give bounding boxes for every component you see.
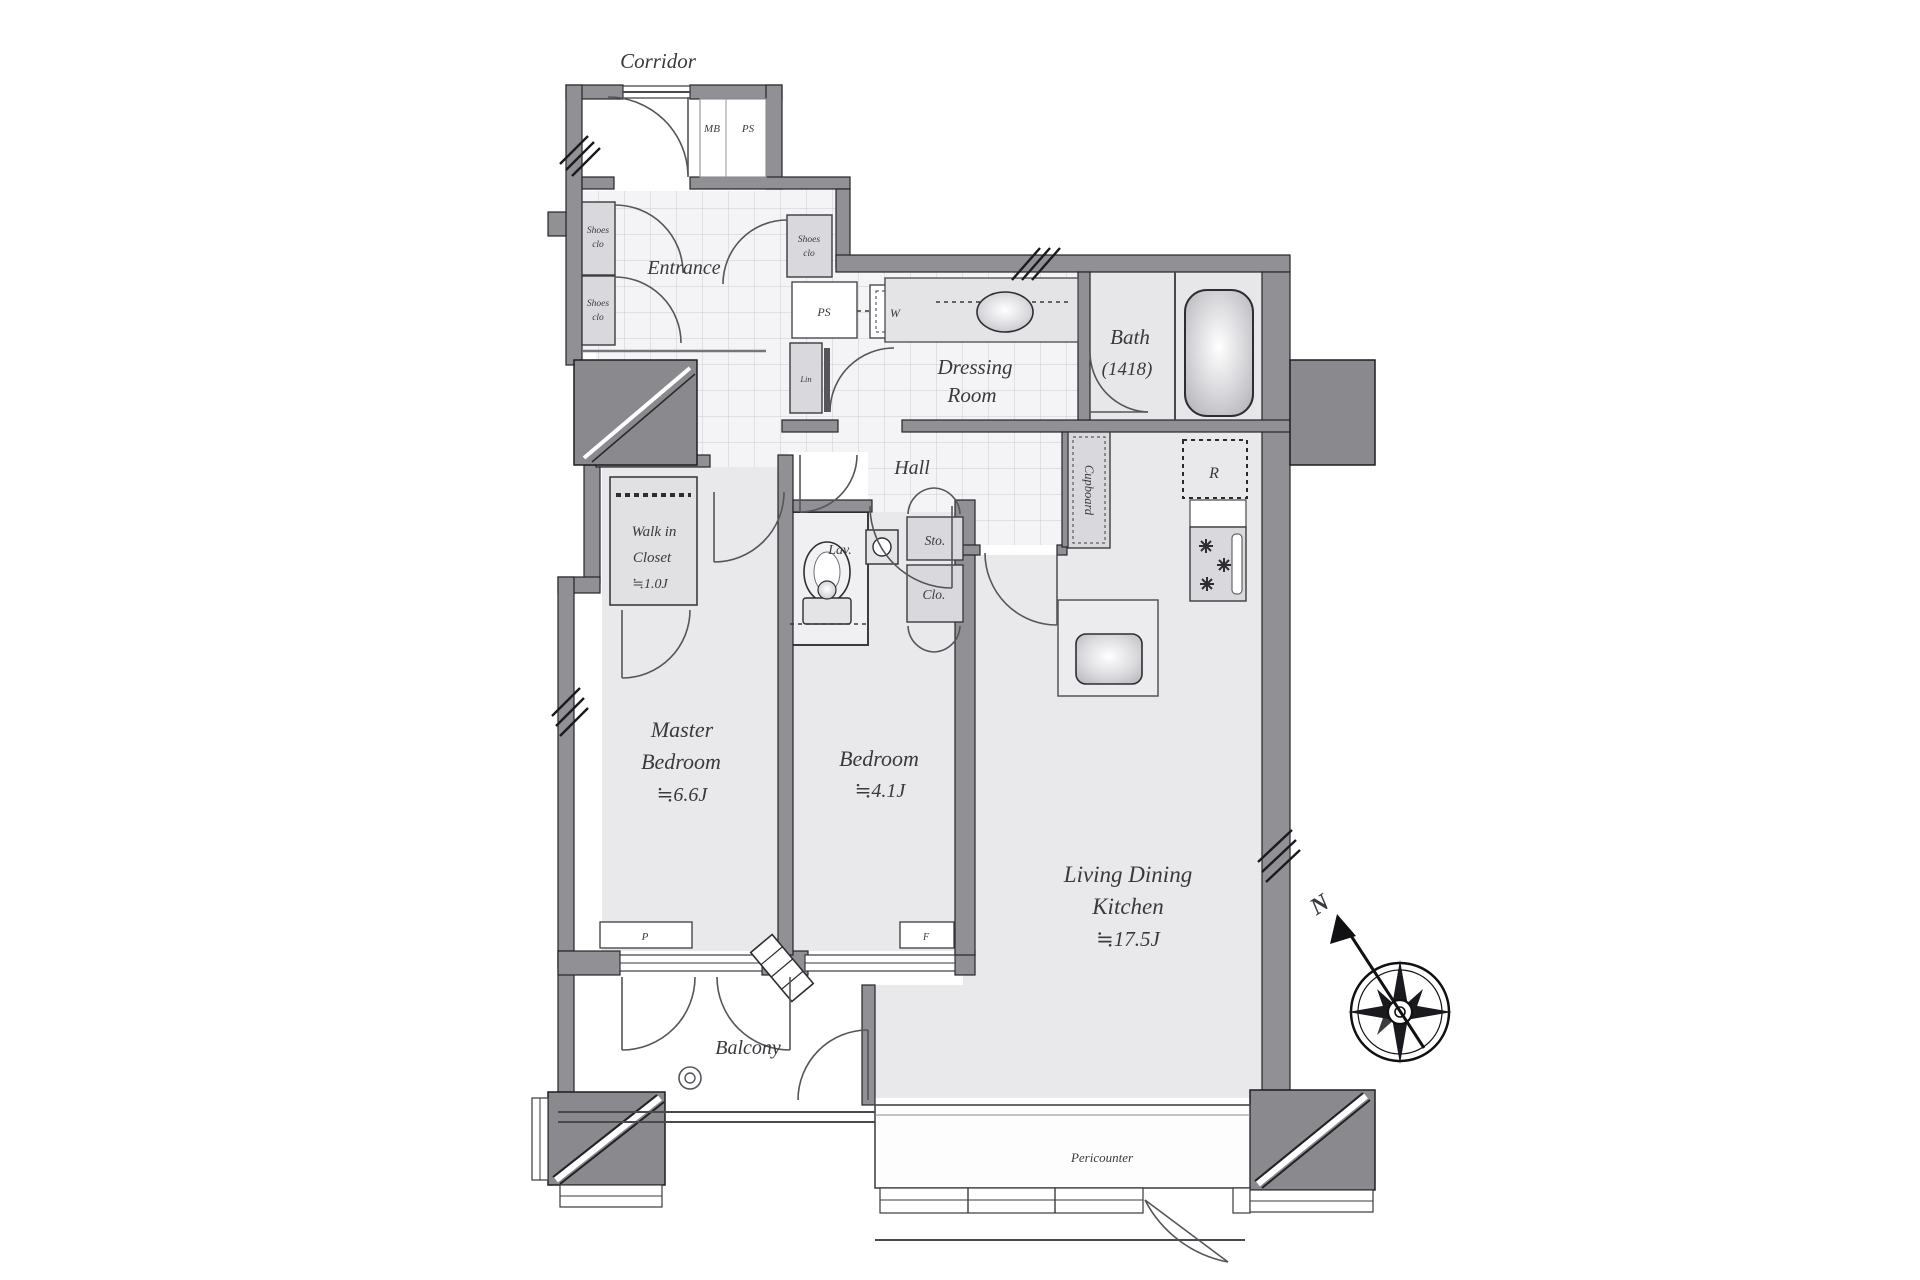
pericounter-band <box>875 1105 1250 1188</box>
wall-left-upper <box>566 85 582 365</box>
stove-counter <box>1190 500 1246 527</box>
lavatory-label: Lav. <box>827 543 851 558</box>
wall-top-main <box>836 255 1290 272</box>
master-balcony-door <box>622 977 695 1050</box>
bathtub <box>1185 290 1253 416</box>
shoes-b-line1: Shoes <box>587 299 609 309</box>
wall-stub-bottom-right <box>690 177 850 189</box>
corridor-label: Corridor <box>620 49 697 73</box>
ldk-size: ≒17.5J <box>1096 927 1161 951</box>
dressing-room-line1: Dressing <box>936 355 1012 379</box>
ldk-line2: Kitchen <box>1091 894 1164 919</box>
hall-label: Hall <box>893 457 930 479</box>
ldk-line1: Living Dining <box>1063 862 1192 887</box>
ps-top-label: PS <box>741 123 755 135</box>
storage-label: Sto. <box>925 533 946 548</box>
wall-stub-bottom-left <box>582 177 614 189</box>
compass-north-label: N <box>1305 888 1336 921</box>
linen-label: Lin <box>799 374 811 384</box>
wall-master-bedroom-divider <box>778 455 793 955</box>
walk-in-closet-size: ≒1.0J <box>632 577 668 592</box>
shoes-closet-b <box>582 276 615 345</box>
wall-dressing-bottom-left <box>782 420 838 432</box>
shoes-c-line1: Shoes <box>798 235 820 245</box>
refrigerator-label: R <box>1208 465 1219 482</box>
washing-machine-label: W <box>890 306 901 320</box>
pipe-space-label: P <box>641 931 649 943</box>
kitchen-sink <box>1076 634 1142 684</box>
bath-size: (1418) <box>1102 359 1153 380</box>
mb-label: MB <box>703 123 720 135</box>
master-bedroom-line2: Bedroom <box>641 749 721 774</box>
lavatory-sink-basin <box>873 538 891 556</box>
bedroom-label: Bedroom <box>839 746 919 771</box>
wall-dressing-bottom-right <box>902 420 1290 432</box>
wall-dressing-bath-divider <box>1078 272 1090 420</box>
shoes-c-line2: clo <box>803 249 815 259</box>
dressing-room-line2: Room <box>947 383 997 407</box>
cupboard-label: Cupboard <box>1082 465 1096 516</box>
toilet-knob <box>818 581 836 599</box>
shoes-closet-c <box>787 215 832 277</box>
balcony-drain-inner <box>685 1073 695 1083</box>
entrance-label: Entrance <box>646 257 720 279</box>
compass-rose: N <box>1305 888 1452 1064</box>
closet-label: Clo. <box>923 587 946 602</box>
shoes-a-line1: Shoes <box>587 226 609 236</box>
walk-in-closet-line1: Walk in <box>632 524 677 540</box>
wall-left-tab <box>548 212 566 236</box>
wall-left-mid <box>584 465 600 583</box>
wall-master-bottom-left <box>558 951 620 975</box>
wall-left-lower <box>558 577 574 967</box>
walk-in-closet-line2: Closet <box>633 550 672 566</box>
wall-stub-right <box>766 85 782 189</box>
vanity-basin <box>977 292 1033 332</box>
stove-grate <box>1232 534 1242 594</box>
bedroom-size: ≒4.1J <box>855 780 907 802</box>
floor-plan-page: Corridor MB PS Entrance Shoes clo Shoes … <box>0 0 1920 1280</box>
shoes-closet-a <box>582 202 615 275</box>
balcony-label: Balcony <box>715 1037 781 1059</box>
master-bedroom-size: ≒6.6J <box>657 784 709 806</box>
toilet-tank <box>803 598 851 624</box>
wall-right-main <box>1262 272 1290 1090</box>
pillar-right-protrusion <box>1290 360 1375 465</box>
floor-plan-drawing: Corridor MB PS Entrance Shoes clo Shoes … <box>0 0 1920 1280</box>
master-bedroom-line1: Master <box>650 717 714 742</box>
pericounter-label: Pericounter <box>1070 1150 1134 1165</box>
ldk-bottom-window-right <box>1233 1188 1250 1213</box>
meter-box-niche <box>700 99 766 177</box>
shoes-b-line2: clo <box>592 313 604 323</box>
pipe-shaft-label: PS <box>816 305 830 319</box>
shoes-a-line2: clo <box>592 240 604 250</box>
f-box-label: F <box>922 932 930 943</box>
entrance-door <box>608 97 688 177</box>
bath-label: Bath <box>1110 325 1150 349</box>
exterior-bottom-door <box>1145 1200 1228 1262</box>
ldk-balcony-door <box>798 1030 868 1100</box>
